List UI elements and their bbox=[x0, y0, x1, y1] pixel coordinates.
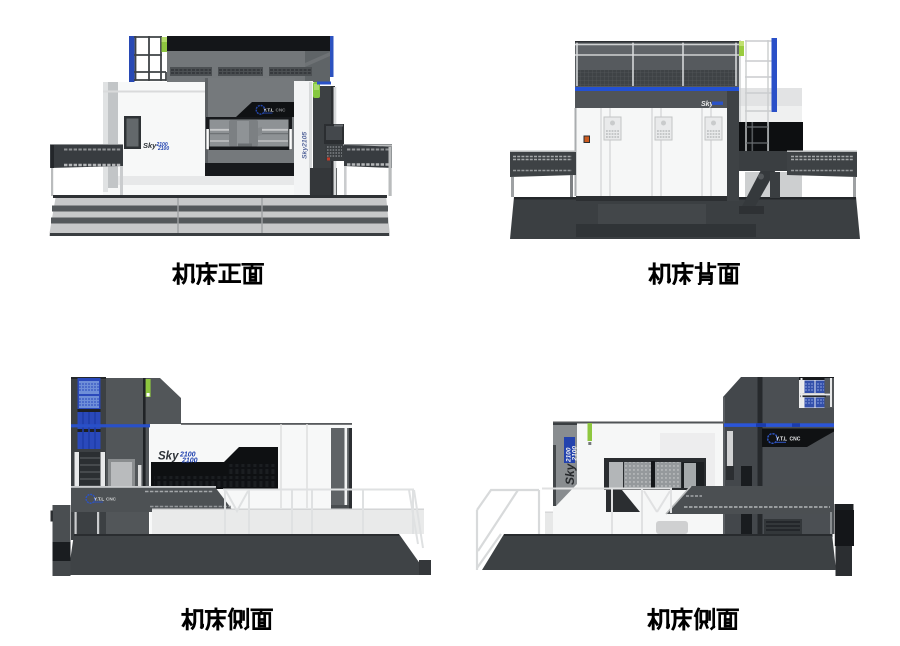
svg-text:Y.T.L: Y.T.L bbox=[264, 108, 274, 113]
svg-text:CNC: CNC bbox=[106, 497, 117, 502]
svg-text:Sky: Sky bbox=[563, 462, 577, 485]
svg-text:2100: 2100 bbox=[181, 458, 198, 465]
svg-text:2100: 2100 bbox=[157, 146, 169, 152]
svg-text:Sky2105: Sky2105 bbox=[302, 132, 309, 159]
svg-text:CNC: CNC bbox=[790, 437, 801, 443]
svg-text:Y.T.L: Y.T.L bbox=[776, 437, 787, 443]
svg-text:2100: 2100 bbox=[572, 446, 579, 462]
svg-text:CNC: CNC bbox=[276, 108, 287, 113]
svg-text:Sky: Sky bbox=[143, 141, 157, 150]
svg-text:Y.T.L: Y.T.L bbox=[94, 497, 104, 502]
svg-text:Sky: Sky bbox=[158, 451, 179, 463]
